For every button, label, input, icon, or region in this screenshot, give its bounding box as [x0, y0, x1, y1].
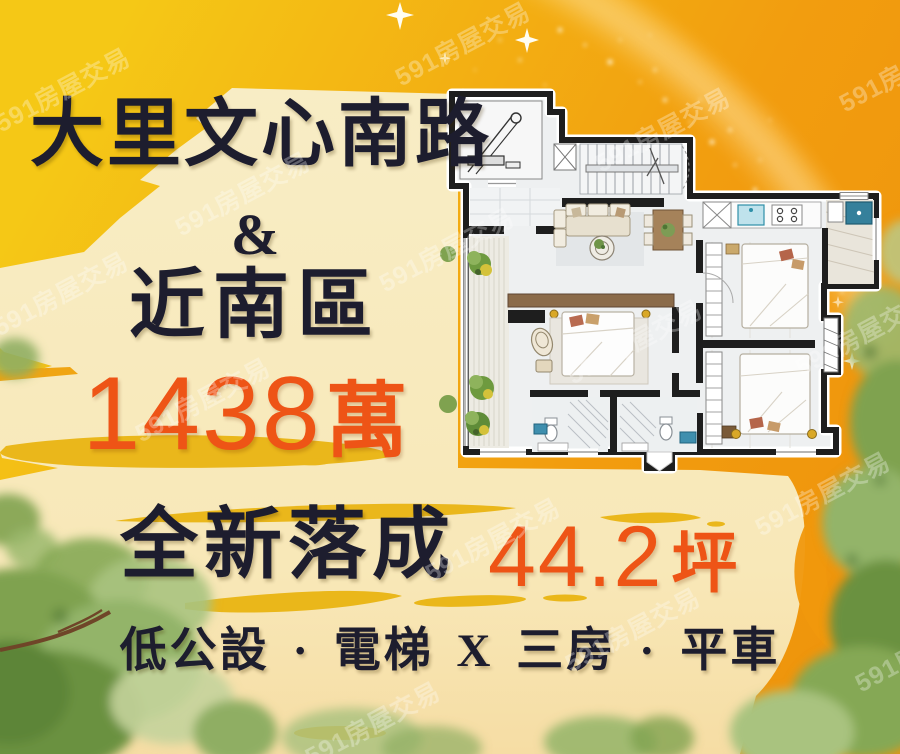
area: 44.2坪	[488, 514, 808, 600]
status-label: 全新落成	[108, 506, 468, 584]
price-value: 1438	[82, 356, 321, 472]
staircase	[580, 144, 689, 194]
pipe-duct	[554, 144, 576, 170]
floor-plan-image	[444, 86, 888, 478]
area-unit: 坪	[671, 528, 737, 601]
bathroom-two	[617, 397, 697, 452]
kitchen	[703, 202, 821, 228]
headline-district: 近南區	[30, 268, 480, 344]
price-unit: 萬	[326, 376, 408, 467]
living-room	[554, 204, 644, 266]
entry-hall	[470, 188, 560, 226]
ampersand-text: &	[30, 206, 480, 264]
bathroom-one	[532, 397, 608, 452]
headline-street: 大里文心南路	[30, 98, 480, 172]
price: 1438萬	[40, 362, 450, 466]
bedroom-two	[703, 242, 808, 338]
poster-canvas: 大里文心南路 & 近南區 1438萬 全新落成 44.2坪 低公設 · 電梯 X…	[0, 0, 900, 754]
utility-balcony	[822, 200, 874, 286]
area-value: 44.2	[488, 509, 663, 605]
features-line: 低公設 · 電梯 X 三房 · 平車	[0, 628, 900, 675]
closet	[824, 318, 838, 372]
